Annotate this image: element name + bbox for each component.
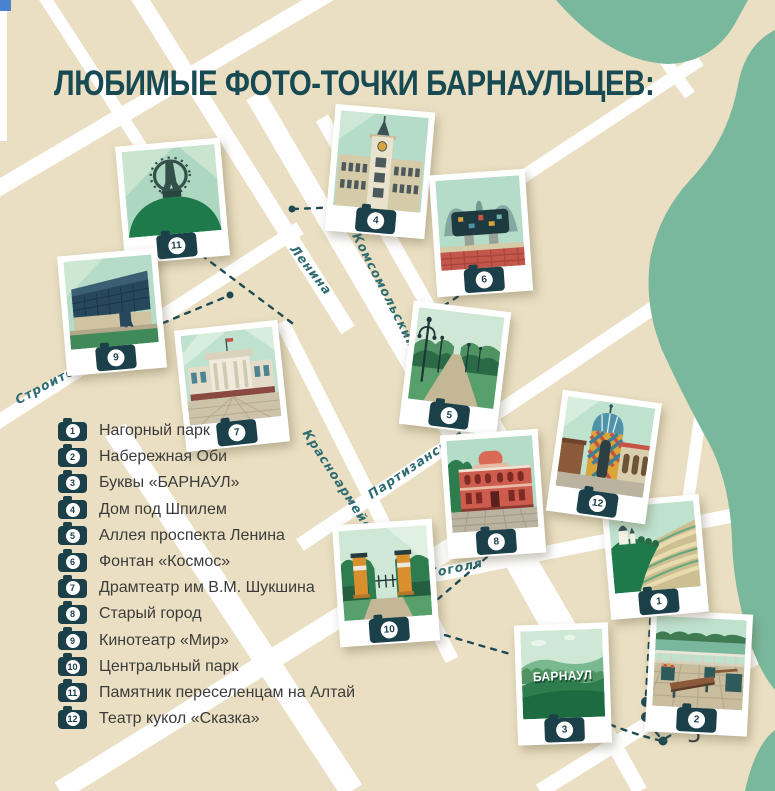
legend-label: Аллея проспекта Ленина xyxy=(99,527,285,545)
legend-number: 10 xyxy=(66,660,80,674)
photo-art-old-town xyxy=(446,435,538,533)
photo-art-alley xyxy=(408,307,505,409)
photo-marker-fontan-kosmos[interactable]: 6 xyxy=(429,169,533,297)
camera-icon: 5 xyxy=(58,526,87,545)
photo-number: 12 xyxy=(588,494,607,513)
photo-art-puppet-theater xyxy=(556,396,656,497)
camera-badge: 6 xyxy=(463,267,505,294)
legend-number: 5 xyxy=(66,529,80,543)
camera-icon: 12 xyxy=(58,710,87,729)
photo-number: 2 xyxy=(688,711,706,729)
page-title: ЛЮБИМЫЕ ФОТО-ТОЧКИ БАРНАУЛЬЦЕВ: xyxy=(54,64,654,104)
camera-icon: 11 xyxy=(58,683,87,702)
photo-number: 4 xyxy=(366,212,384,230)
legend-item-7: 7 Драмтеатр им В.М. Шукшина xyxy=(58,575,355,601)
legend-item-5: 5 Аллея проспекта Ленина xyxy=(58,523,355,549)
photo-number: 9 xyxy=(107,349,125,367)
camera-icon: 8 xyxy=(58,605,87,624)
camera-badge: 8 xyxy=(476,529,518,556)
camera-icon: 7 xyxy=(58,579,87,598)
camera-badge: 11 xyxy=(155,232,197,259)
legend-number: 1 xyxy=(66,424,80,438)
camera-icon: 6 xyxy=(58,553,87,572)
camera-badge: 5 xyxy=(428,401,471,430)
camera-badge: 3 xyxy=(544,717,585,742)
legend-number: 4 xyxy=(66,503,80,517)
photo-marker-teatr-kukol[interactable]: 12 xyxy=(546,390,662,525)
legend-item-10: 10 Центральный парк xyxy=(58,654,355,680)
photo-marker-bukvy-barnaul[interactable]: БАРНАУЛ 3 xyxy=(514,622,612,745)
photo-number: 6 xyxy=(475,271,493,289)
infographic-map-page: ЛЮБИМЫЕ ФОТО-ТОЧКИ БАРНАУЛЬЦЕВ: Ленина К… xyxy=(0,0,775,791)
legend-item-1: 1 Нагорный парк xyxy=(58,418,355,444)
page-edge xyxy=(0,11,7,141)
photo-art-barnaul-letters: БАРНАУЛ xyxy=(520,629,605,720)
camera-badge: 12 xyxy=(576,489,619,518)
legend-item-6: 6 Фонтан «Космос» xyxy=(58,549,355,575)
photo-number: 1 xyxy=(650,593,668,611)
legend-label: Буквы «БАРНАУЛ» xyxy=(99,474,240,492)
legend-number: 6 xyxy=(66,555,80,569)
photo-number: 11 xyxy=(167,237,185,255)
legend-label: Театр кукол «Сказка» xyxy=(99,710,260,728)
legend-label: Набережная Оби xyxy=(99,448,227,466)
camera-icon: 2 xyxy=(58,448,87,467)
legend-number: 8 xyxy=(66,607,80,621)
legend-number: 12 xyxy=(66,712,80,726)
photo-marker-kinoteatr-mir[interactable]: 9 xyxy=(57,248,167,376)
legend-number: 3 xyxy=(66,476,80,490)
photo-art-drama-theater xyxy=(181,326,282,425)
camera-icon: 10 xyxy=(58,657,87,676)
legend-label: Фонтан «Космос» xyxy=(99,553,230,571)
legend-item-3: 3 Буквы «БАРНАУЛ» xyxy=(58,470,355,496)
photo-marker-naberezhnaya-obi[interactable]: 2 xyxy=(645,609,753,736)
camera-icon: 1 xyxy=(58,422,87,441)
photo-number: 10 xyxy=(380,621,398,639)
legend-label: Драмтеатр им В.М. Шукшина xyxy=(99,579,315,597)
corner-marker xyxy=(0,0,11,11)
legend-number: 11 xyxy=(66,686,80,700)
legend-label: Дом под Шпилем xyxy=(99,501,227,519)
camera-icon: 4 xyxy=(58,500,87,519)
photo-number: 8 xyxy=(487,533,505,551)
photo-marker-dom-pod-shpilem[interactable]: 4 xyxy=(325,104,436,239)
legend-label: Памятник переселенцам на Алтай xyxy=(99,684,355,702)
photo-art-cinema xyxy=(63,254,158,349)
legend-label: Кинотеатр «Мир» xyxy=(99,632,229,650)
legend-number: 9 xyxy=(66,634,80,648)
camera-badge: 4 xyxy=(355,207,397,234)
legend: 1 Нагорный парк 2 Набережная Оби 3 Буквы… xyxy=(58,418,355,732)
photo-art-embankment xyxy=(652,616,747,711)
legend-label: Нагорный парк xyxy=(99,422,210,440)
photo-number: 5 xyxy=(440,406,459,425)
legend-item-4: 4 Дом под Шпилем xyxy=(58,497,355,523)
camera-badge: 1 xyxy=(638,588,680,615)
photo-number: 3 xyxy=(556,721,574,739)
legend-label: Старый город xyxy=(99,605,202,623)
legend-item-9: 9 Кинотеатр «Мир» xyxy=(58,628,355,654)
camera-icon: 9 xyxy=(58,631,87,650)
camera-badge: 9 xyxy=(95,344,137,371)
legend-item-12: 12 Театр кукол «Сказка» xyxy=(58,706,355,732)
camera-badge: 10 xyxy=(368,617,410,644)
photo-marker-monument-pereselentsam[interactable]: 11 xyxy=(115,138,230,265)
photo-marker-alleya-lenina[interactable]: 5 xyxy=(399,300,511,435)
photo-marker-stary-gorod[interactable]: 8 xyxy=(440,429,546,560)
photo-art-fountain xyxy=(435,175,525,271)
camera-icon: 3 xyxy=(58,474,87,493)
legend-number: 7 xyxy=(66,581,80,595)
legend-label: Центральный парк xyxy=(99,658,239,676)
legend-item-11: 11 Памятник переселенцам на Алтай xyxy=(58,680,355,706)
camera-badge: 2 xyxy=(676,707,717,733)
legend-item-8: 8 Старый город xyxy=(58,601,355,627)
photo-art-monument xyxy=(122,144,222,238)
legend-item-2: 2 Набережная Оби xyxy=(58,444,355,470)
barnaul-sign-text: БАРНАУЛ xyxy=(533,668,593,685)
photo-art-spire-house xyxy=(333,110,429,212)
legend-number: 2 xyxy=(66,450,80,464)
